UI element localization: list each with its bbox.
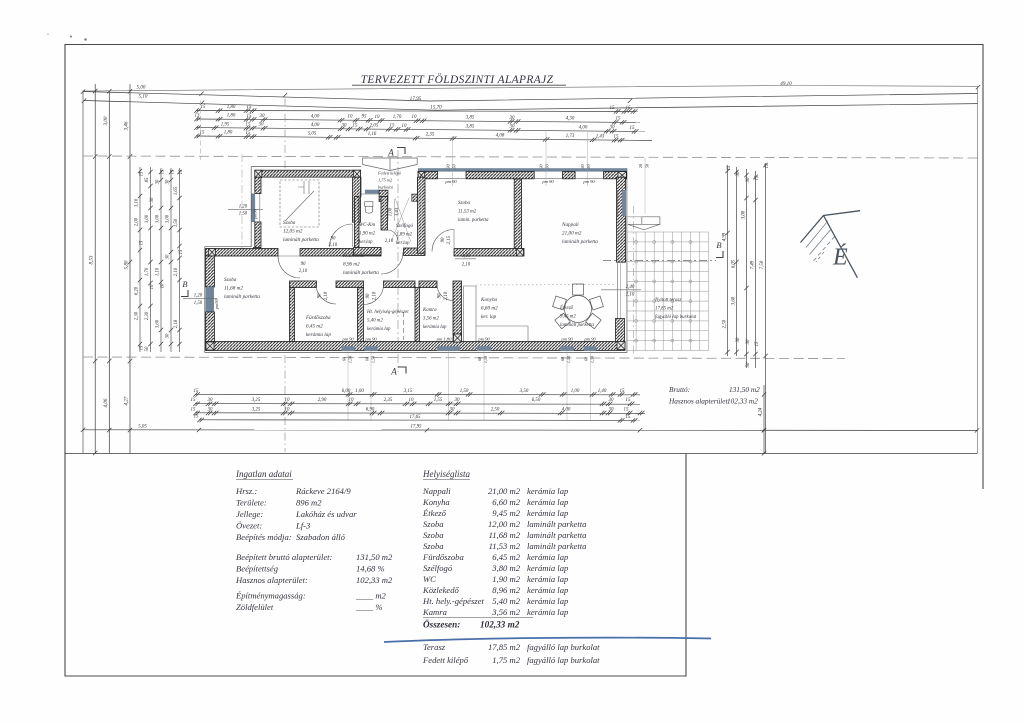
- svg-text:3,56 m2: 3,56 m2: [423, 317, 439, 322]
- svg-text:2,50: 2,50: [722, 319, 727, 328]
- svg-text:13: 13: [195, 113, 200, 118]
- svg-text:Lakóház és udvar: Lakóház és udvar: [295, 509, 357, 519]
- svg-text:2,30: 2,30: [145, 311, 150, 320]
- svg-text:Beépítés módja:: Beépítés módja:: [236, 532, 292, 542]
- svg-text:Közlekedő: Közlekedő: [422, 585, 460, 595]
- svg-text:15: 15: [179, 249, 184, 254]
- svg-text:95: 95: [362, 115, 367, 120]
- svg-text:Bruttó:: Bruttó:: [669, 385, 690, 394]
- svg-text:3,43: 3,43: [395, 207, 400, 216]
- svg-text:Zöldfelület: Zöldfelület: [236, 602, 274, 612]
- svg-text:8,53: 8,53: [89, 255, 95, 264]
- svg-text:7,49: 7,49: [750, 260, 755, 269]
- svg-text:5,40 m2: 5,40 m2: [367, 319, 383, 324]
- svg-text:15: 15: [765, 163, 770, 168]
- svg-text:17,95: 17,95: [410, 425, 422, 430]
- svg-text:pm 90: pm 90: [444, 179, 457, 184]
- svg-text:kerámia lap: kerámia lap: [527, 607, 569, 617]
- svg-text:Fedett kilépő: Fedett kilépő: [422, 655, 469, 665]
- svg-text:102,33 m2: 102,33 m2: [480, 620, 520, 630]
- svg-text:10: 10: [161, 283, 166, 288]
- svg-text:6,45 m2: 6,45 m2: [492, 552, 520, 562]
- svg-text:Beépített bruttó alapterület:: Beépített bruttó alapterület:: [236, 552, 333, 562]
- svg-text:30: 30: [156, 179, 161, 184]
- svg-text:15: 15: [727, 165, 732, 170]
- svg-text:pm90: pm90: [253, 208, 258, 220]
- svg-text:1,55: 1,55: [434, 398, 443, 403]
- svg-text:É: É: [832, 245, 848, 271]
- svg-text:3,25: 3,25: [252, 407, 261, 412]
- svg-text:4,30: 4,30: [566, 116, 575, 121]
- svg-text:1,70: 1,70: [393, 115, 402, 120]
- svg-text:10: 10: [412, 115, 417, 120]
- svg-text:Ht. helyiség-gépészet: Ht. helyiség-gépészet: [366, 310, 409, 315]
- svg-text:laminált parketta: laminált parketta: [224, 294, 260, 300]
- svg-text:Konyha: Konyha: [422, 497, 450, 507]
- svg-text:11,53 m2: 11,53 m2: [458, 210, 477, 215]
- svg-text:2,35: 2,35: [426, 133, 435, 138]
- svg-text:4,06: 4,06: [103, 398, 109, 407]
- svg-text:4,08: 4,08: [496, 133, 505, 138]
- svg-text:15: 15: [755, 175, 760, 180]
- svg-text:Hasznos alapterület:: Hasznos alapterület:: [668, 396, 730, 405]
- svg-text:3,89 m2: 3,89 m2: [396, 233, 413, 238]
- svg-text:Jellege:: Jellege:: [236, 509, 263, 519]
- svg-text:Fürdőszoba: Fürdőszoba: [422, 552, 464, 562]
- svg-text:2,10: 2,10: [329, 243, 338, 248]
- svg-text:90: 90: [366, 293, 371, 298]
- svg-text:1,80: 1,80: [224, 131, 233, 136]
- svg-text:Fedett kilépő: Fedett kilépő: [377, 171, 402, 176]
- svg-text:85: 85: [145, 177, 150, 182]
- svg-text:____ %: ____ %: [355, 602, 383, 612]
- svg-text:5,80: 5,80: [123, 260, 129, 269]
- svg-text:21,00 m2: 21,00 m2: [562, 231, 582, 237]
- svg-text:kerámia lap: kerámia lap: [527, 508, 569, 518]
- svg-text:kerámia lap: kerámia lap: [527, 497, 569, 507]
- svg-text:17,95: 17,95: [410, 96, 422, 102]
- svg-text:Szabadon álló: Szabadon álló: [296, 532, 346, 542]
- svg-text:7,50: 7,50: [760, 260, 765, 269]
- svg-text:pm 90: pm 90: [583, 336, 596, 341]
- svg-text:A: A: [390, 367, 397, 377]
- svg-text:11,68 m2: 11,68 m2: [489, 530, 521, 540]
- svg-text:A: A: [387, 148, 394, 158]
- svg-text:15: 15: [246, 131, 251, 136]
- svg-text:131,50 m2: 131,50 m2: [729, 385, 760, 394]
- svg-text:30: 30: [609, 398, 614, 403]
- svg-text:15: 15: [140, 171, 145, 176]
- svg-text:2,10: 2,10: [444, 291, 449, 300]
- svg-text:fagyálló lap burkolat: fagyálló lap burkolat: [527, 655, 600, 665]
- svg-text:30: 30: [208, 407, 213, 412]
- svg-text:30: 30: [736, 171, 741, 176]
- svg-text:TERVEZETT FÖLDSZINTI ALAPRAJZ: TERVEZETT FÖLDSZINTI ALAPRAJZ: [361, 74, 554, 86]
- svg-text:5,40 m2: 5,40 m2: [492, 596, 520, 606]
- svg-text:kerámia lap: kerámia lap: [367, 327, 391, 332]
- svg-text:15: 15: [614, 135, 619, 140]
- svg-text:30: 30: [166, 254, 171, 259]
- svg-text:kerámia lap: kerámia lap: [527, 585, 569, 595]
- svg-text:10: 10: [348, 115, 353, 120]
- svg-text:102,33 m2: 102,33 m2: [356, 575, 393, 585]
- svg-text:1,00: 1,00: [571, 389, 580, 394]
- svg-text:pm 90: pm 90: [477, 336, 490, 341]
- svg-text:Ráckeve 2164/9: Ráckeve 2164/9: [295, 486, 351, 496]
- svg-text:30: 30: [736, 337, 741, 342]
- svg-text:1,90 m2: 1,90 m2: [492, 574, 520, 584]
- svg-text:WC: WC: [423, 574, 436, 584]
- svg-text:2,30: 2,30: [135, 311, 140, 320]
- svg-text:30: 30: [150, 197, 155, 202]
- svg-text:50: 50: [145, 346, 150, 351]
- svg-text:15: 15: [171, 169, 176, 174]
- svg-text:2,00: 2,00: [135, 217, 140, 226]
- svg-text:3,85: 3,85: [466, 116, 475, 121]
- svg-text:10: 10: [349, 398, 354, 403]
- svg-text:Nyitott terasz: Nyitott terasz: [654, 298, 681, 303]
- svg-text:17,85 m2: 17,85 m2: [655, 307, 674, 312]
- svg-text:10: 10: [402, 124, 407, 129]
- svg-text:5,05: 5,05: [138, 424, 147, 429]
- svg-text:49,10: 49,10: [780, 81, 792, 87]
- svg-text:9,45 m2: 9,45 m2: [492, 508, 520, 518]
- svg-text:11,68 m2: 11,68 m2: [224, 286, 243, 292]
- svg-text:15: 15: [610, 106, 615, 111]
- svg-text:2,18: 2,18: [174, 319, 179, 328]
- svg-text:6,00: 6,00: [342, 389, 351, 394]
- svg-text:15: 15: [620, 389, 625, 394]
- svg-text:laminált parketta: laminált parketta: [343, 270, 379, 276]
- svg-text:30: 30: [746, 339, 751, 344]
- svg-text:B: B: [182, 279, 187, 289]
- svg-text:30: 30: [259, 123, 264, 128]
- svg-text:90: 90: [301, 262, 306, 267]
- svg-text:Beépítettség: Beépítettség: [236, 564, 279, 574]
- svg-text:1,16: 1,16: [368, 132, 377, 137]
- svg-text:4,00: 4,00: [311, 123, 320, 128]
- svg-text:3,00: 3,00: [741, 210, 746, 219]
- svg-text:5,10: 5,10: [139, 93, 148, 99]
- svg-text:15: 15: [624, 407, 629, 412]
- svg-text:Összesen:: Összesen:: [423, 620, 460, 630]
- svg-text:15: 15: [161, 169, 166, 174]
- svg-text:3,60: 3,60: [731, 296, 736, 305]
- svg-text:laminált parketta: laminált parketta: [283, 237, 319, 243]
- svg-text:kerámia lap: kerámia lap: [527, 486, 569, 496]
- svg-text:kerámia lap: kerámia lap: [527, 552, 569, 562]
- svg-text:15: 15: [140, 240, 145, 245]
- svg-text:3,15: 3,15: [404, 389, 413, 394]
- svg-text:3,85: 3,85: [466, 124, 475, 129]
- svg-text:6,50: 6,50: [532, 398, 541, 403]
- svg-text:Helyiséglista: Helyiséglista: [422, 469, 470, 479]
- svg-text:pm 90: pm 90: [541, 179, 554, 184]
- svg-text:4,00: 4,00: [562, 407, 571, 412]
- svg-text:1,00: 1,00: [355, 389, 364, 394]
- svg-text:1,00: 1,00: [462, 254, 471, 259]
- svg-text:5,05: 5,05: [308, 132, 317, 137]
- svg-text:2,05: 2,05: [370, 124, 379, 129]
- svg-text:Ingatlan adatai: Ingatlan adatai: [235, 469, 292, 479]
- svg-text:17,65: 17,65: [409, 415, 421, 420]
- svg-text:3,00: 3,00: [166, 214, 171, 223]
- svg-text:burkolat: burkolat: [378, 185, 394, 190]
- svg-text:3,80 m2: 3,80 m2: [491, 563, 520, 573]
- svg-text:15: 15: [626, 106, 631, 111]
- svg-text:15: 15: [247, 105, 252, 110]
- svg-text:15: 15: [140, 345, 145, 350]
- svg-text:4,27: 4,27: [123, 396, 129, 405]
- svg-text:Lf-3: Lf-3: [295, 521, 310, 531]
- svg-text:kerámia lap: kerámia lap: [527, 596, 569, 606]
- svg-text:10: 10: [375, 115, 380, 120]
- svg-text:1,95: 1,95: [221, 122, 230, 127]
- svg-text:131,50 m2: 131,50 m2: [356, 552, 393, 562]
- svg-text:15: 15: [626, 398, 631, 403]
- svg-text:1,20: 1,20: [194, 293, 203, 298]
- svg-text:B: B: [716, 240, 721, 250]
- svg-text:Területe:: Területe:: [236, 498, 267, 508]
- svg-text:1,75 m2: 1,75 m2: [492, 655, 520, 665]
- svg-text:15: 15: [353, 123, 358, 128]
- svg-text:Szélfogó: Szélfogó: [423, 563, 453, 573]
- svg-text:3,00: 3,00: [145, 214, 150, 223]
- svg-text:2,10: 2,10: [324, 291, 329, 300]
- svg-text:6,20: 6,20: [135, 286, 140, 295]
- svg-text:12,05 m2: 12,05 m2: [283, 229, 303, 235]
- svg-text:1,65: 1,65: [174, 186, 179, 195]
- svg-text:1,50: 1,50: [239, 212, 248, 217]
- svg-text:pm90: pm90: [214, 298, 219, 310]
- svg-text:pm 90: pm 90: [341, 336, 354, 341]
- svg-text:4,00: 4,00: [579, 125, 588, 130]
- svg-text:90: 90: [438, 293, 443, 298]
- svg-text:2,90: 2,90: [318, 398, 327, 403]
- svg-text:2,35: 2,35: [384, 398, 393, 403]
- svg-text:Övezet:: Övezet:: [236, 521, 262, 531]
- svg-text:1,20: 1,20: [239, 204, 248, 209]
- svg-text:3,00: 3,00: [103, 116, 109, 125]
- svg-text:102,33 m2: 102,33 m2: [727, 396, 758, 405]
- svg-text:pm 90: pm 90: [582, 179, 595, 184]
- svg-text:4,99: 4,99: [722, 232, 727, 241]
- svg-text:lamin. parketta: lamin. parketta: [458, 218, 489, 223]
- svg-text:Hrsz.:: Hrsz.:: [235, 486, 257, 496]
- svg-text:14,68 %: 14,68 %: [356, 564, 385, 574]
- svg-text:11,53 m2: 11,53 m2: [489, 541, 521, 551]
- svg-text:Fürdőszoba: Fürdőszoba: [305, 314, 331, 321]
- svg-text:____ m2: ____ m2: [355, 591, 387, 601]
- svg-text:15: 15: [194, 389, 199, 394]
- svg-text:1,50: 1,50: [194, 301, 203, 306]
- svg-text:Szoba: Szoba: [458, 201, 470, 206]
- svg-text:Szoba: Szoba: [423, 541, 444, 551]
- svg-text:2,15: 2,15: [447, 235, 452, 244]
- svg-text:Szoba: Szoba: [423, 530, 444, 540]
- svg-text:1,40: 1,40: [598, 389, 607, 394]
- svg-text:1,50: 1,50: [460, 389, 469, 394]
- svg-text:30: 30: [260, 114, 265, 119]
- svg-text:fagyálló lap burkolat: fagyálló lap burkolat: [527, 642, 600, 652]
- svg-text:17,85 m2: 17,85 m2: [488, 642, 521, 652]
- svg-text:ker.lap: ker.lap: [359, 240, 373, 245]
- svg-text:15: 15: [201, 105, 206, 110]
- svg-text:2,50: 2,50: [491, 407, 500, 412]
- svg-text:6,45 m2: 6,45 m2: [306, 323, 323, 330]
- svg-text:10: 10: [150, 284, 155, 289]
- svg-text:1,70: 1,70: [145, 267, 150, 276]
- svg-text:Konyha: Konyha: [480, 297, 498, 303]
- svg-text:21,00 m2: 21,00 m2: [488, 486, 521, 496]
- svg-text:6,60 m2: 6,60 m2: [492, 497, 520, 507]
- svg-text:15: 15: [194, 414, 199, 419]
- svg-text:1,80: 1,80: [227, 114, 236, 119]
- svg-text:15: 15: [755, 341, 760, 346]
- svg-text:15: 15: [390, 124, 395, 129]
- svg-text:Ht. hely.-gépészet: Ht. hely.-gépészet: [422, 596, 484, 606]
- svg-text:kerámia lap: kerámia lap: [527, 563, 569, 573]
- svg-text:4,00: 4,00: [311, 114, 320, 119]
- svg-text:WC-Km: WC-Km: [359, 223, 376, 228]
- svg-text:kerámia lap: kerámia lap: [306, 332, 331, 338]
- svg-text:15: 15: [191, 398, 196, 403]
- svg-text:2,10: 2,10: [385, 239, 394, 244]
- svg-text:Étkező: Étkező: [559, 305, 574, 311]
- svg-text:50: 50: [746, 362, 751, 367]
- svg-text:3,56 m2: 3,56 m2: [491, 607, 520, 617]
- svg-text:30: 30: [510, 125, 515, 130]
- svg-text:15: 15: [630, 126, 635, 131]
- svg-text:90: 90: [441, 237, 446, 242]
- svg-text:30: 30: [450, 407, 455, 412]
- svg-text:12,00 m2: 12,00 m2: [488, 519, 521, 529]
- svg-text:30: 30: [510, 116, 515, 121]
- svg-text:90: 90: [318, 293, 323, 298]
- svg-text:6,90: 6,90: [366, 407, 375, 412]
- svg-text:30: 30: [166, 179, 171, 184]
- svg-text:15: 15: [179, 169, 184, 174]
- svg-text:laminált parketta: laminált parketta: [562, 239, 598, 245]
- svg-text:Nappali: Nappali: [561, 222, 579, 228]
- svg-text:3,16: 3,16: [135, 198, 140, 207]
- svg-text:1,73: 1,73: [566, 134, 575, 139]
- svg-text:8,96 m2: 8,96 m2: [492, 585, 520, 595]
- svg-text:2,10: 2,10: [299, 269, 308, 274]
- svg-text:3,46: 3,46: [124, 121, 130, 130]
- svg-text:Építménymagasság:: Építménymagasság:: [235, 591, 306, 601]
- svg-text:3,00: 3,00: [156, 214, 161, 223]
- svg-text:15: 15: [247, 114, 252, 119]
- svg-text:1,50: 1,50: [174, 218, 179, 227]
- svg-text:pm 90: pm 90: [560, 336, 573, 341]
- svg-text:30: 30: [746, 177, 751, 182]
- svg-text:1,90 m2: 1,90 m2: [359, 232, 376, 237]
- svg-text:15: 15: [246, 122, 251, 127]
- svg-text:2,10: 2,10: [174, 267, 179, 276]
- svg-text:30: 30: [455, 398, 460, 403]
- svg-text:90: 90: [331, 237, 336, 242]
- svg-text:15: 15: [626, 415, 631, 420]
- svg-text:Szélfogó: Szélfogó: [396, 224, 413, 229]
- svg-text:pm 90: pm 90: [364, 336, 377, 341]
- svg-text:4,24: 4,24: [759, 407, 764, 416]
- svg-text:10: 10: [409, 398, 414, 403]
- svg-text:30: 30: [610, 126, 615, 131]
- svg-text:10: 10: [285, 407, 290, 412]
- svg-text:15: 15: [191, 407, 196, 412]
- svg-text:1,10: 1,10: [156, 267, 161, 276]
- svg-text:1,43: 1,43: [596, 134, 605, 139]
- svg-text:fagyálló lap burkolat: fagyálló lap burkolat: [655, 315, 697, 320]
- svg-text:8,96 m2: 8,96 m2: [343, 262, 360, 268]
- svg-text:3,50: 3,50: [520, 389, 529, 394]
- svg-text:ker.lap: ker.lap: [396, 241, 410, 246]
- svg-text:30: 30: [609, 407, 614, 412]
- svg-text:30: 30: [342, 123, 347, 128]
- svg-text:laminált parketta: laminált parketta: [527, 530, 586, 540]
- svg-text:kerámia lap: kerámia lap: [423, 325, 447, 330]
- svg-text:1,00: 1,00: [389, 207, 394, 216]
- svg-text:896 m2: 896 m2: [296, 498, 322, 508]
- svg-text:30: 30: [208, 398, 213, 403]
- svg-text:Szoba: Szoba: [423, 519, 444, 529]
- svg-text:3,25: 3,25: [252, 398, 261, 403]
- svg-text:Közlekedő: Közlekedő: [342, 252, 365, 259]
- svg-text:kerámia lap: kerámia lap: [527, 574, 569, 584]
- svg-text:Kamra: Kamra: [422, 308, 437, 313]
- svg-text:Szoba: Szoba: [224, 277, 237, 283]
- svg-text:15: 15: [616, 117, 621, 122]
- svg-text:15,70: 15,70: [430, 105, 442, 111]
- svg-text:6,60 m2: 6,60 m2: [481, 306, 498, 312]
- svg-text:3,60: 3,60: [156, 319, 161, 328]
- svg-text:5,00: 5,00: [137, 85, 146, 91]
- svg-text:ker. lap: ker. lap: [481, 314, 497, 320]
- svg-text:Terasz: Terasz: [423, 642, 446, 652]
- svg-text:6,05: 6,05: [731, 259, 736, 268]
- svg-text:laminált parketta: laminált parketta: [527, 519, 586, 529]
- svg-text:2,10: 2,10: [372, 291, 377, 300]
- svg-text:Kamra: Kamra: [422, 607, 447, 617]
- svg-text:30: 30: [166, 333, 171, 338]
- svg-text:Étkező: Étkező: [422, 508, 447, 518]
- svg-text:Nappali: Nappali: [422, 486, 451, 496]
- svg-text:2,10: 2,10: [462, 262, 471, 267]
- svg-text:Hasznos alapterület:: Hasznos alapterület:: [235, 575, 308, 585]
- svg-text:10: 10: [285, 398, 290, 403]
- svg-text:laminált parketta: laminált parketta: [527, 541, 586, 551]
- svg-text:1,80: 1,80: [227, 105, 236, 110]
